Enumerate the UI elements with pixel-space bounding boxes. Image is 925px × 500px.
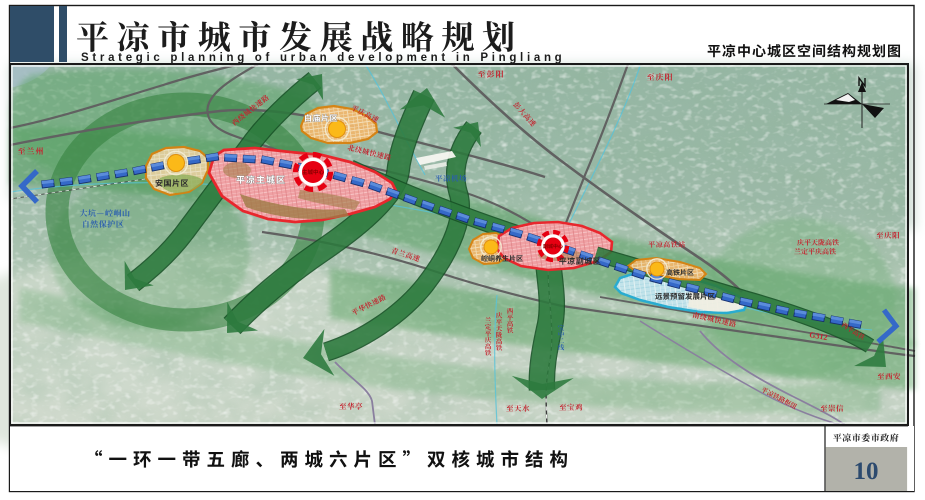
svg-text:Strategic planning of urban de: Strategic planning of urban development …	[81, 52, 565, 64]
svg-text:10: 10	[854, 458, 879, 485]
